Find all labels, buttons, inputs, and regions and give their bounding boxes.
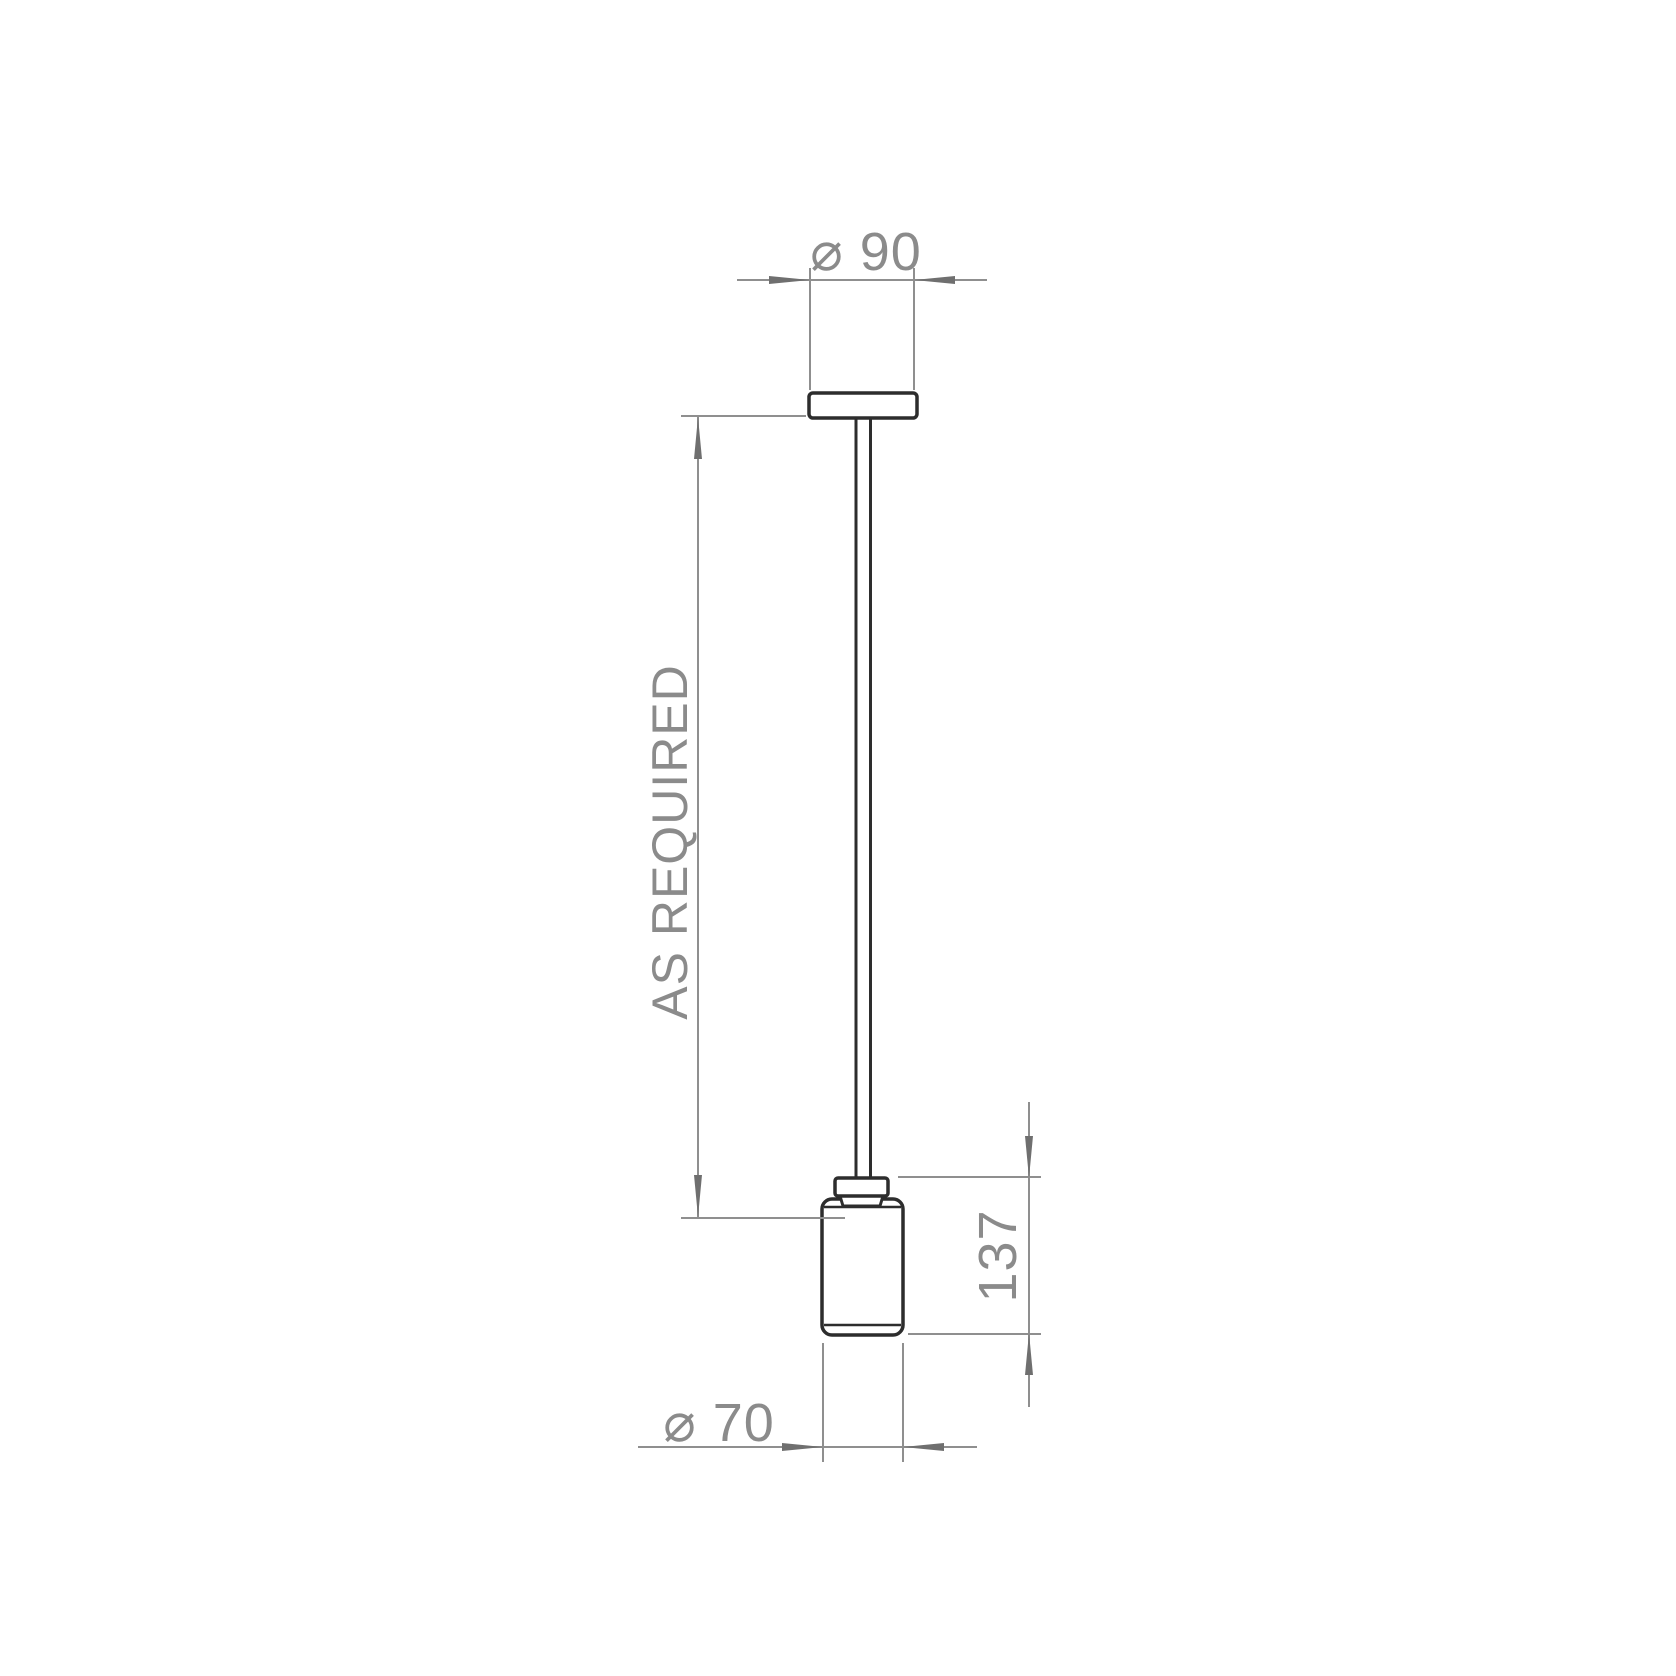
shade-diameter-label: ⌀ 70 <box>663 1393 775 1453</box>
arrow-left-icon <box>903 1443 944 1451</box>
shade-height-label: 137 <box>968 1209 1028 1302</box>
lampholder <box>835 1178 888 1206</box>
shade-body <box>822 1199 903 1335</box>
dimension-drop-length: AS REQUIRED <box>642 416 845 1218</box>
cylindrical-shade <box>822 1199 903 1335</box>
top-diameter-label: ⌀ 90 <box>810 222 922 282</box>
arrow-down-icon <box>694 1175 702 1217</box>
arrow-up-icon <box>1025 1333 1033 1375</box>
arrow-up-icon <box>694 417 702 459</box>
arrow-right-icon <box>769 276 810 284</box>
dimension-shade-diameter: ⌀ 70 <box>638 1343 977 1462</box>
dimension-shade-height: 137 <box>898 1102 1041 1407</box>
pendant-light-outline <box>809 393 917 1335</box>
ceiling-plate <box>809 393 917 418</box>
suspension-rod <box>856 418 871 1180</box>
arrow-right-icon <box>782 1443 823 1451</box>
arrow-down-icon <box>1025 1136 1033 1178</box>
technical-drawing-canvas: ⌀ 90 AS REQUIRED 137 ⌀ 70 <box>0 0 1676 1676</box>
dimension-top-diameter: ⌀ 90 <box>737 222 987 390</box>
pendant-light-dimension-drawing: ⌀ 90 AS REQUIRED 137 ⌀ 70 <box>0 0 1676 1676</box>
lampholder-cap <box>835 1178 888 1196</box>
drop-length-label: AS REQUIRED <box>642 664 698 1020</box>
